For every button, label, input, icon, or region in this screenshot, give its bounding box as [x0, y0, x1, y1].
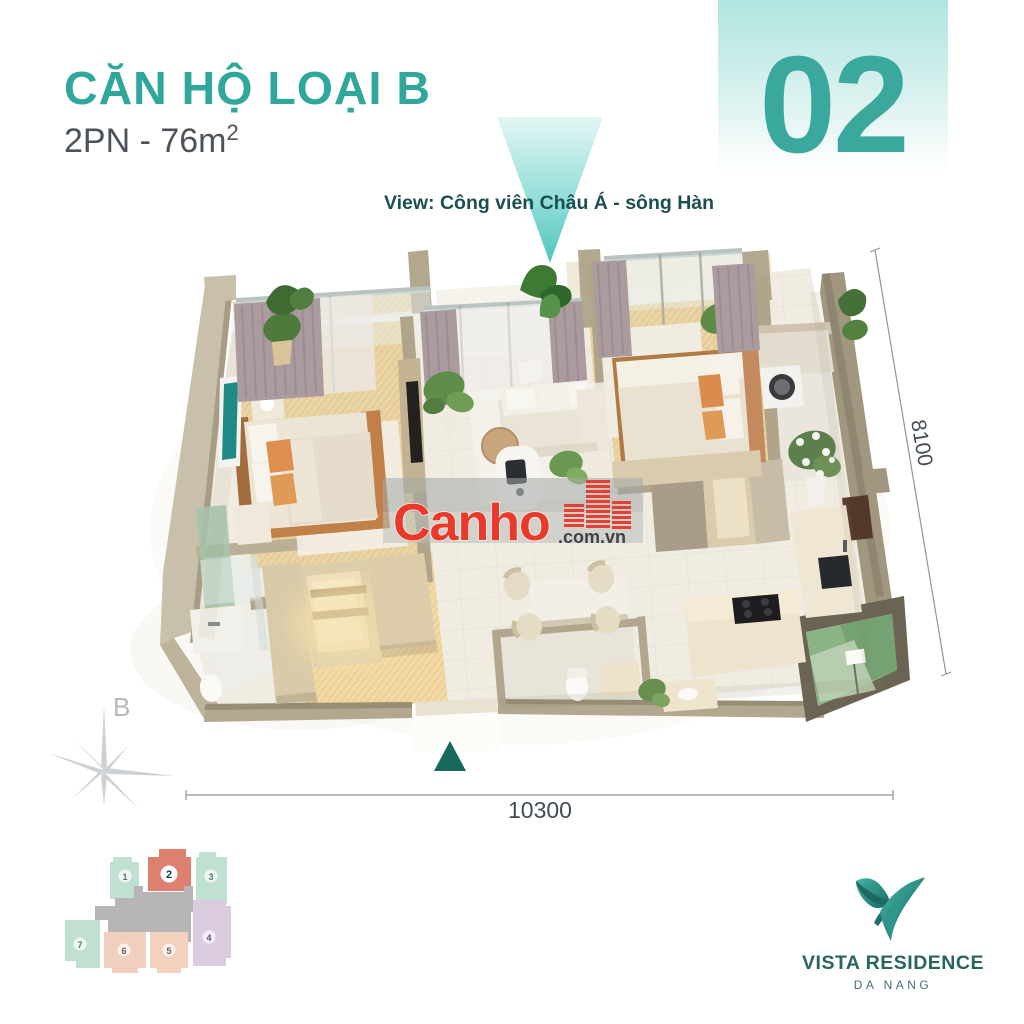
svg-text:VISTA RESIDENCE: VISTA RESIDENCE — [802, 952, 984, 974]
svg-text:2: 2 — [166, 869, 172, 881]
svg-text:3: 3 — [208, 872, 213, 882]
svg-text:10300: 10300 — [508, 797, 572, 823]
svg-text:.com.vn: .com.vn — [558, 527, 626, 547]
svg-text:5: 5 — [166, 946, 171, 956]
svg-text:Canho: Canho — [393, 494, 550, 552]
svg-text:CĂN HỘ LOẠI B: CĂN HỘ LOẠI B — [64, 62, 431, 114]
svg-text:7: 7 — [77, 940, 82, 950]
svg-text:02: 02 — [759, 28, 907, 182]
svg-text:DA NANG: DA NANG — [854, 978, 933, 992]
svg-text:2PN - 76m2: 2PN - 76m2 — [64, 120, 239, 160]
svg-text:View: Công viên Châu Á - sông: View: Công viên Châu Á - sông Hàn — [384, 191, 714, 214]
svg-text:6: 6 — [121, 946, 126, 956]
svg-text:B: B — [113, 692, 130, 722]
svg-text:4: 4 — [206, 933, 211, 943]
svg-text:1: 1 — [122, 872, 127, 882]
